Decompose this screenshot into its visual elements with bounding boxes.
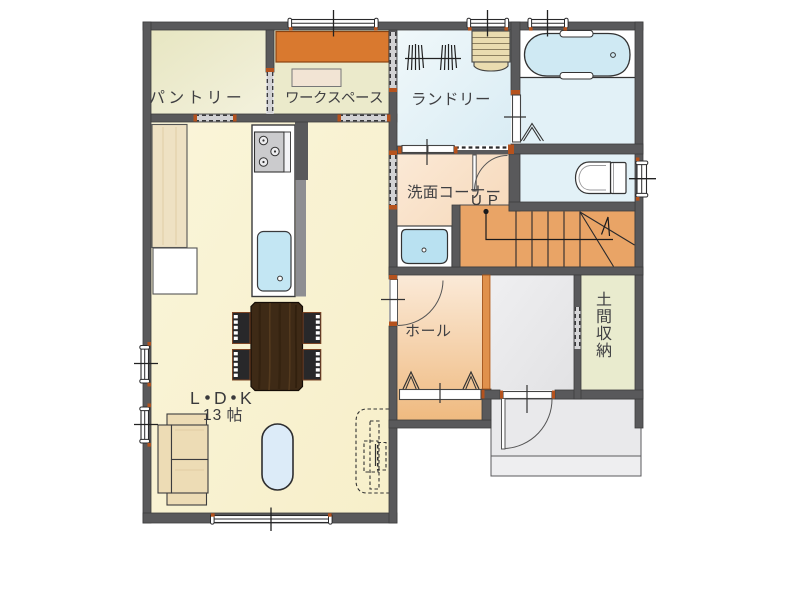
svg-text:13: 13 (203, 407, 222, 424)
svg-text:L: L (190, 388, 200, 408)
svg-text:UP: UP (471, 192, 504, 209)
svg-text:D: D (214, 388, 227, 408)
svg-text:K: K (240, 388, 252, 408)
